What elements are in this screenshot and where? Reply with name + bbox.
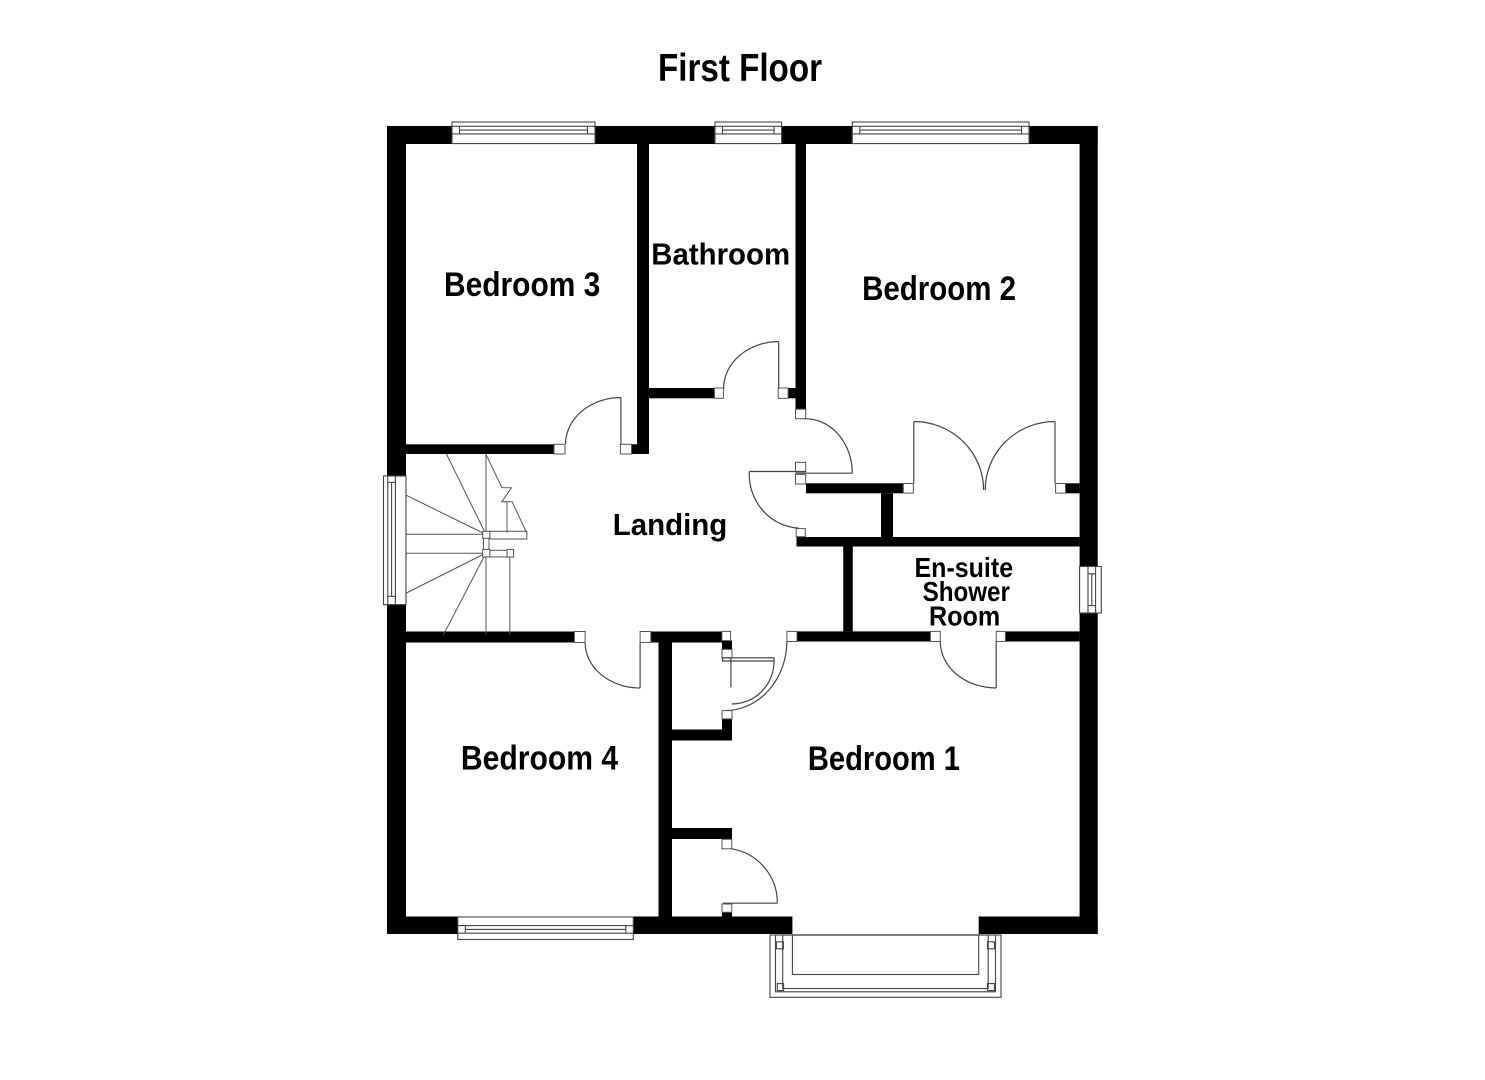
svg-text:Bedroom 3: Bedroom 3 [444, 266, 600, 304]
svg-text:Bedroom 1: Bedroom 1 [808, 740, 960, 778]
svg-text:Landing: Landing [613, 507, 728, 542]
svg-text:First Floor: First Floor [658, 47, 822, 90]
svg-text:Bathroom: Bathroom [651, 237, 790, 272]
svg-text:Bedroom 4: Bedroom 4 [461, 740, 618, 778]
svg-text:Bedroom 2: Bedroom 2 [862, 270, 1016, 308]
svg-text:Room: Room [929, 600, 1000, 631]
